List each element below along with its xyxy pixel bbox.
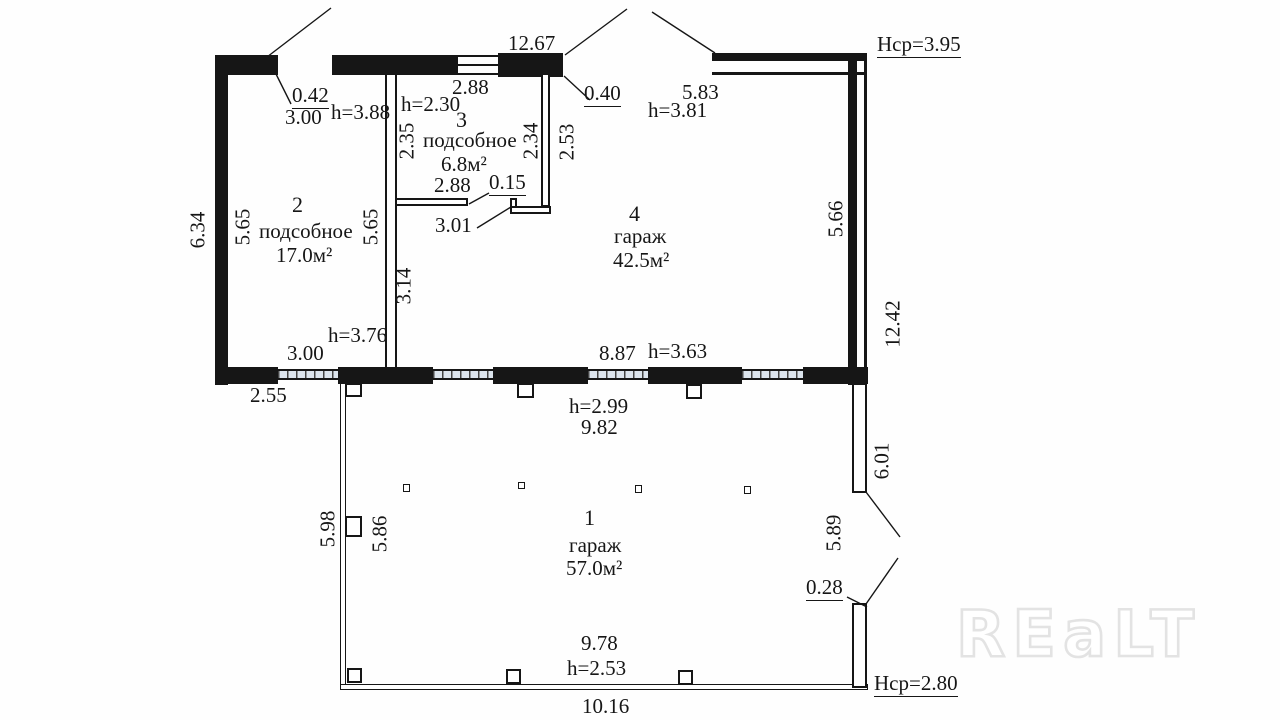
dim-bottom-outer: 10.16 [582,696,629,717]
dim-room2-width-bottom: 3.00 [287,343,324,364]
dim-right-jog: 0.28 [806,577,843,601]
dim-room1-width-bottom: 9.78 [581,633,618,654]
dim-room3-width-bottom: 2.88 [434,175,471,196]
height-room4: h=3.81 [648,100,707,121]
height-mid-wall: h=3.63 [648,341,707,362]
dim-room2-right: 5.65 [361,209,382,246]
break-line-right-up [866,492,900,537]
dim-room1-right: 5.89 [824,515,845,552]
dim-left-ledge: 2.55 [250,385,287,406]
break-line-top-left [267,8,331,57]
break-line-top-mid-r [652,12,715,53]
dim-left-outer: 6.34 [188,212,209,249]
dim-right-outer-top: 12.42 [883,300,904,347]
dim-room1-left-inner: 5.86 [370,516,391,553]
room4-number: 4 [629,203,640,225]
room2-area: 17.0м² [276,245,332,266]
dim-step: 0.15 [489,172,526,196]
room4-area: 42.5м² [613,250,669,271]
dim-room4-right: 5.66 [826,201,847,238]
dim-room2-left: 5.65 [233,209,254,246]
break-line-top-mid-l [565,9,627,55]
break-line-right-down [866,558,898,604]
room3-area: 6.8м² [441,154,487,175]
height-room3: h=2.30 [401,94,460,115]
dim-room4-notch: 2.53 [557,124,578,161]
leader-0-42 [268,58,291,104]
dim-room2-width-top: 3.00 [285,107,322,128]
dim-room1-left-outer: 5.98 [318,511,339,548]
room1-area: 57.0м² [566,558,622,579]
dim-room3-right: 2.34 [521,123,542,160]
avg-height-top: Нср=3.95 [877,34,961,58]
dim-room4-inner-width: 3.01 [435,215,472,236]
realt-watermark: REaLT [956,598,1201,672]
dim-room4-left-lower: 3.14 [394,268,415,305]
dim-room1-width-top: 9.82 [581,417,618,438]
floor-plan: 12.67 Нср=3.95 0.42 3.00 h=3.88 2.88 h=2… [0,0,1280,720]
height-room2: h=3.76 [328,325,387,346]
leader-3-01 [477,207,511,228]
room1-number: 1 [584,507,595,529]
dim-top-opening: 12.67 [508,33,555,54]
room3-name: подсобное [423,130,517,151]
height-top-left: h=3.88 [331,102,390,123]
dim-right-wall-upper: 6.01 [872,443,893,480]
room2-number: 2 [292,194,303,216]
avg-height-bottom: Нср=2.80 [874,673,958,697]
height-room1-bottom: h=2.53 [567,658,626,679]
room1-name: гараж [569,535,621,556]
height-room1-top: h=2.99 [569,396,628,417]
leader-0-15 [469,193,489,204]
dim-room3-left: 2.35 [397,123,418,160]
dim-room4-width-bottom: 8.87 [599,343,636,364]
room2-name: подсобное [259,221,353,242]
dim-wall-offset-top: 0.40 [584,83,621,107]
leader-0-28 [847,597,867,607]
room4-name: гараж [614,226,666,247]
